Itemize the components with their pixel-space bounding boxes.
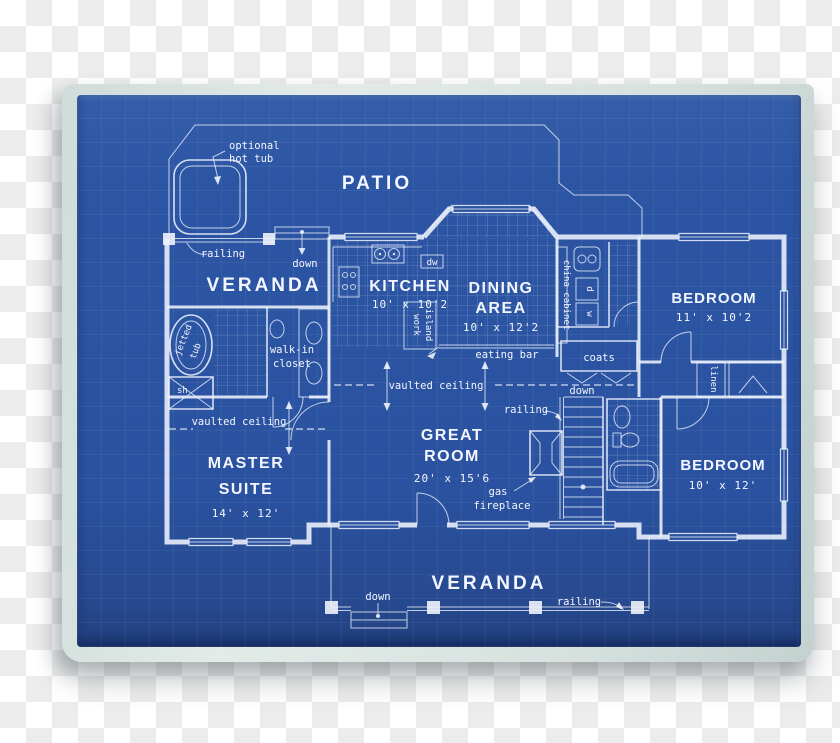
hot-tub-inner <box>180 166 240 228</box>
great-room-label1: GREAT <box>421 427 483 444</box>
shower-label: sh <box>177 386 188 396</box>
fireplace <box>530 431 562 475</box>
great-room-label2: ROOM <box>424 448 480 465</box>
hot-tub <box>174 160 246 234</box>
master-suite-label2: SUITE <box>219 481 274 498</box>
down-bottom-label: down <box>365 591 390 603</box>
railing-top-label: railing <box>201 248 245 260</box>
fireplace-label1: gas <box>489 486 508 498</box>
china-cabinet-label: china cabinet <box>561 260 571 330</box>
dishwasher-label: dw <box>427 258 438 268</box>
bedroom1-closet <box>729 362 784 397</box>
railing-bottom-label: railing <box>557 596 601 608</box>
walk-in-closet-label2: closet <box>273 358 311 370</box>
shower <box>169 377 213 409</box>
great-room-dims: 20' x 15'6 <box>414 472 490 485</box>
veranda-top-label: VERANDA <box>207 275 322 296</box>
kitchen-label: KITCHEN <box>369 278 451 295</box>
down-top-arrowhead <box>299 248 306 255</box>
transparency-checkerboard: optional hot tub PATIO <box>0 0 840 743</box>
hot-tub-label-line1: optional <box>229 140 280 152</box>
fireplace-arrowhead <box>528 477 536 483</box>
master-suite-dims: 14' x 12' <box>212 507 281 520</box>
walk-in-closet-label1: walk-in <box>270 344 314 356</box>
hot-tub-leader-arrowhead <box>214 176 221 185</box>
patio-label: PATIO <box>342 173 412 194</box>
dining-label-line2: AREA <box>475 300 526 317</box>
blueprint-sheet: optional hot tub PATIO <box>77 95 801 647</box>
bedroom1-label: BEDROOM <box>671 290 756 307</box>
master-suite-label1: MASTER <box>208 455 285 472</box>
vaulted-master-label: vaulted ceiling <box>192 416 287 428</box>
fireplace-label2: fireplace <box>474 500 531 512</box>
down-top-label: down <box>292 258 317 270</box>
jetted-tub-label2: tub <box>188 342 203 361</box>
blueprint-paper: optional hot tub PATIO <box>62 84 814 662</box>
railing-bottom-arrowhead <box>616 602 624 610</box>
bedroom2-label: BEDROOM <box>680 457 765 474</box>
coats-label: coats <box>583 352 615 364</box>
stairs-down-label: down <box>569 385 594 397</box>
linen-label: linen <box>708 365 718 392</box>
eating-bar-arrowhead <box>427 352 436 359</box>
veranda-top-railing <box>163 227 329 245</box>
veranda-bottom-label: VERANDA <box>432 573 547 594</box>
dining-label-line1: DINING <box>469 280 534 297</box>
bedroom1-dims: 11' x 10'2 <box>676 311 752 324</box>
stairs-railing-label: railing <box>504 404 548 416</box>
down-top-arrow-dot <box>300 230 304 234</box>
vaulted-great-label: vaulted ceiling <box>389 380 484 392</box>
kitchen-dims: 10' x 10'2 <box>372 298 448 311</box>
washer-label: w <box>584 311 594 317</box>
floor-plan-drawing: optional hot tub PATIO <box>77 95 801 647</box>
work-island-label2: island <box>423 309 433 342</box>
eating-bar-label: eating bar <box>475 349 538 361</box>
bedroom2-dims: 10' x 12' <box>689 479 758 492</box>
hot-tub-leader <box>213 151 225 179</box>
dryer-label: d <box>584 286 594 291</box>
dining-dims: 10' x 12'2 <box>463 321 539 334</box>
down-bottom-dot <box>376 614 380 618</box>
stairs <box>560 397 603 519</box>
work-island-label1: work <box>411 314 421 336</box>
hot-tub-label-line2: hot tub <box>229 153 273 165</box>
